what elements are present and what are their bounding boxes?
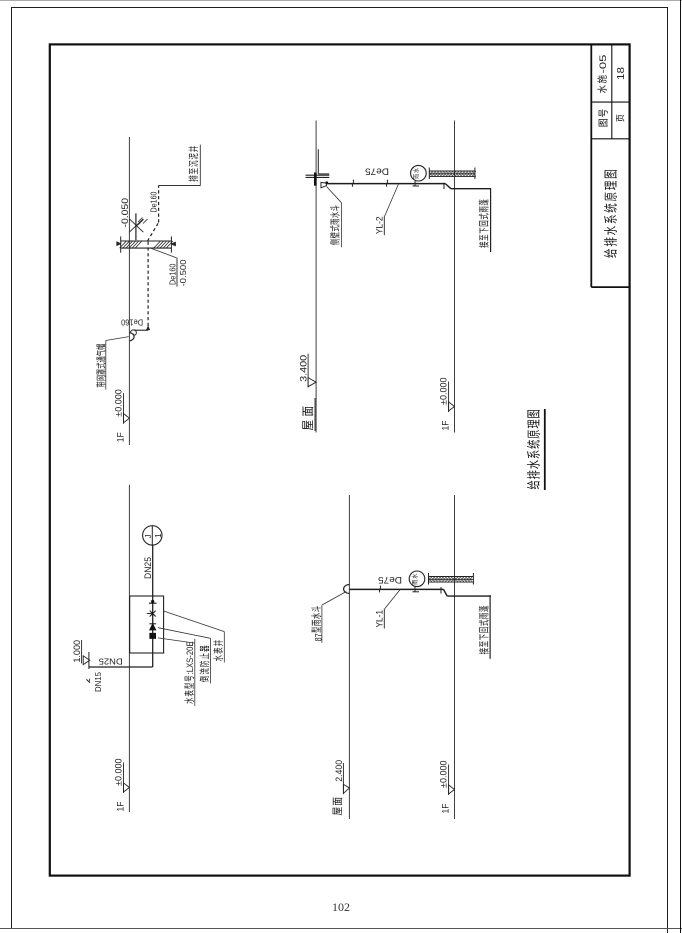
svg-text:1F: 1F [441,420,452,430]
svg-text:DN25: DN25 [143,557,153,579]
svg-text:1F: 1F [441,803,452,813]
svg-text:YL-2: YL-2 [375,217,385,235]
svg-text:-0.500: -0.500 [178,259,188,286]
svg-text:De160: De160 [148,191,158,212]
svg-text:18: 18 [616,66,627,80]
svg-text:±0.000: ±0.000 [439,761,449,789]
svg-text:±0.000: ±0.000 [114,759,124,787]
svg-text:-05: -05 [598,55,609,74]
svg-text:1F: 1F [116,432,127,442]
svg-text:J: J [144,534,153,538]
svg-text:De160: De160 [121,318,143,328]
svg-text:2.400: 2.400 [334,760,344,782]
svg-text:1: 1 [154,533,163,538]
svg-text:De75: De75 [365,167,389,177]
svg-text:1.000: 1.000 [72,640,82,663]
svg-text:±0.000: ±0.000 [114,389,124,417]
svg-text::LXS-20E: :LXS-20E [185,641,195,674]
svg-text:3.400: 3.400 [299,355,309,382]
svg-text:YL-1: YL-1 [375,610,385,628]
svg-text:De75: De75 [378,575,402,585]
svg-text:87: 87 [313,633,324,641]
svg-text:DN25: DN25 [98,657,122,667]
svg-text:DN15: DN15 [93,672,103,692]
svg-text:1F: 1F [116,801,127,811]
svg-text:±0.000: ±0.000 [439,378,449,406]
svg-text:-0.050: -0.050 [120,198,130,228]
svg-text:De160: De160 [167,263,177,285]
